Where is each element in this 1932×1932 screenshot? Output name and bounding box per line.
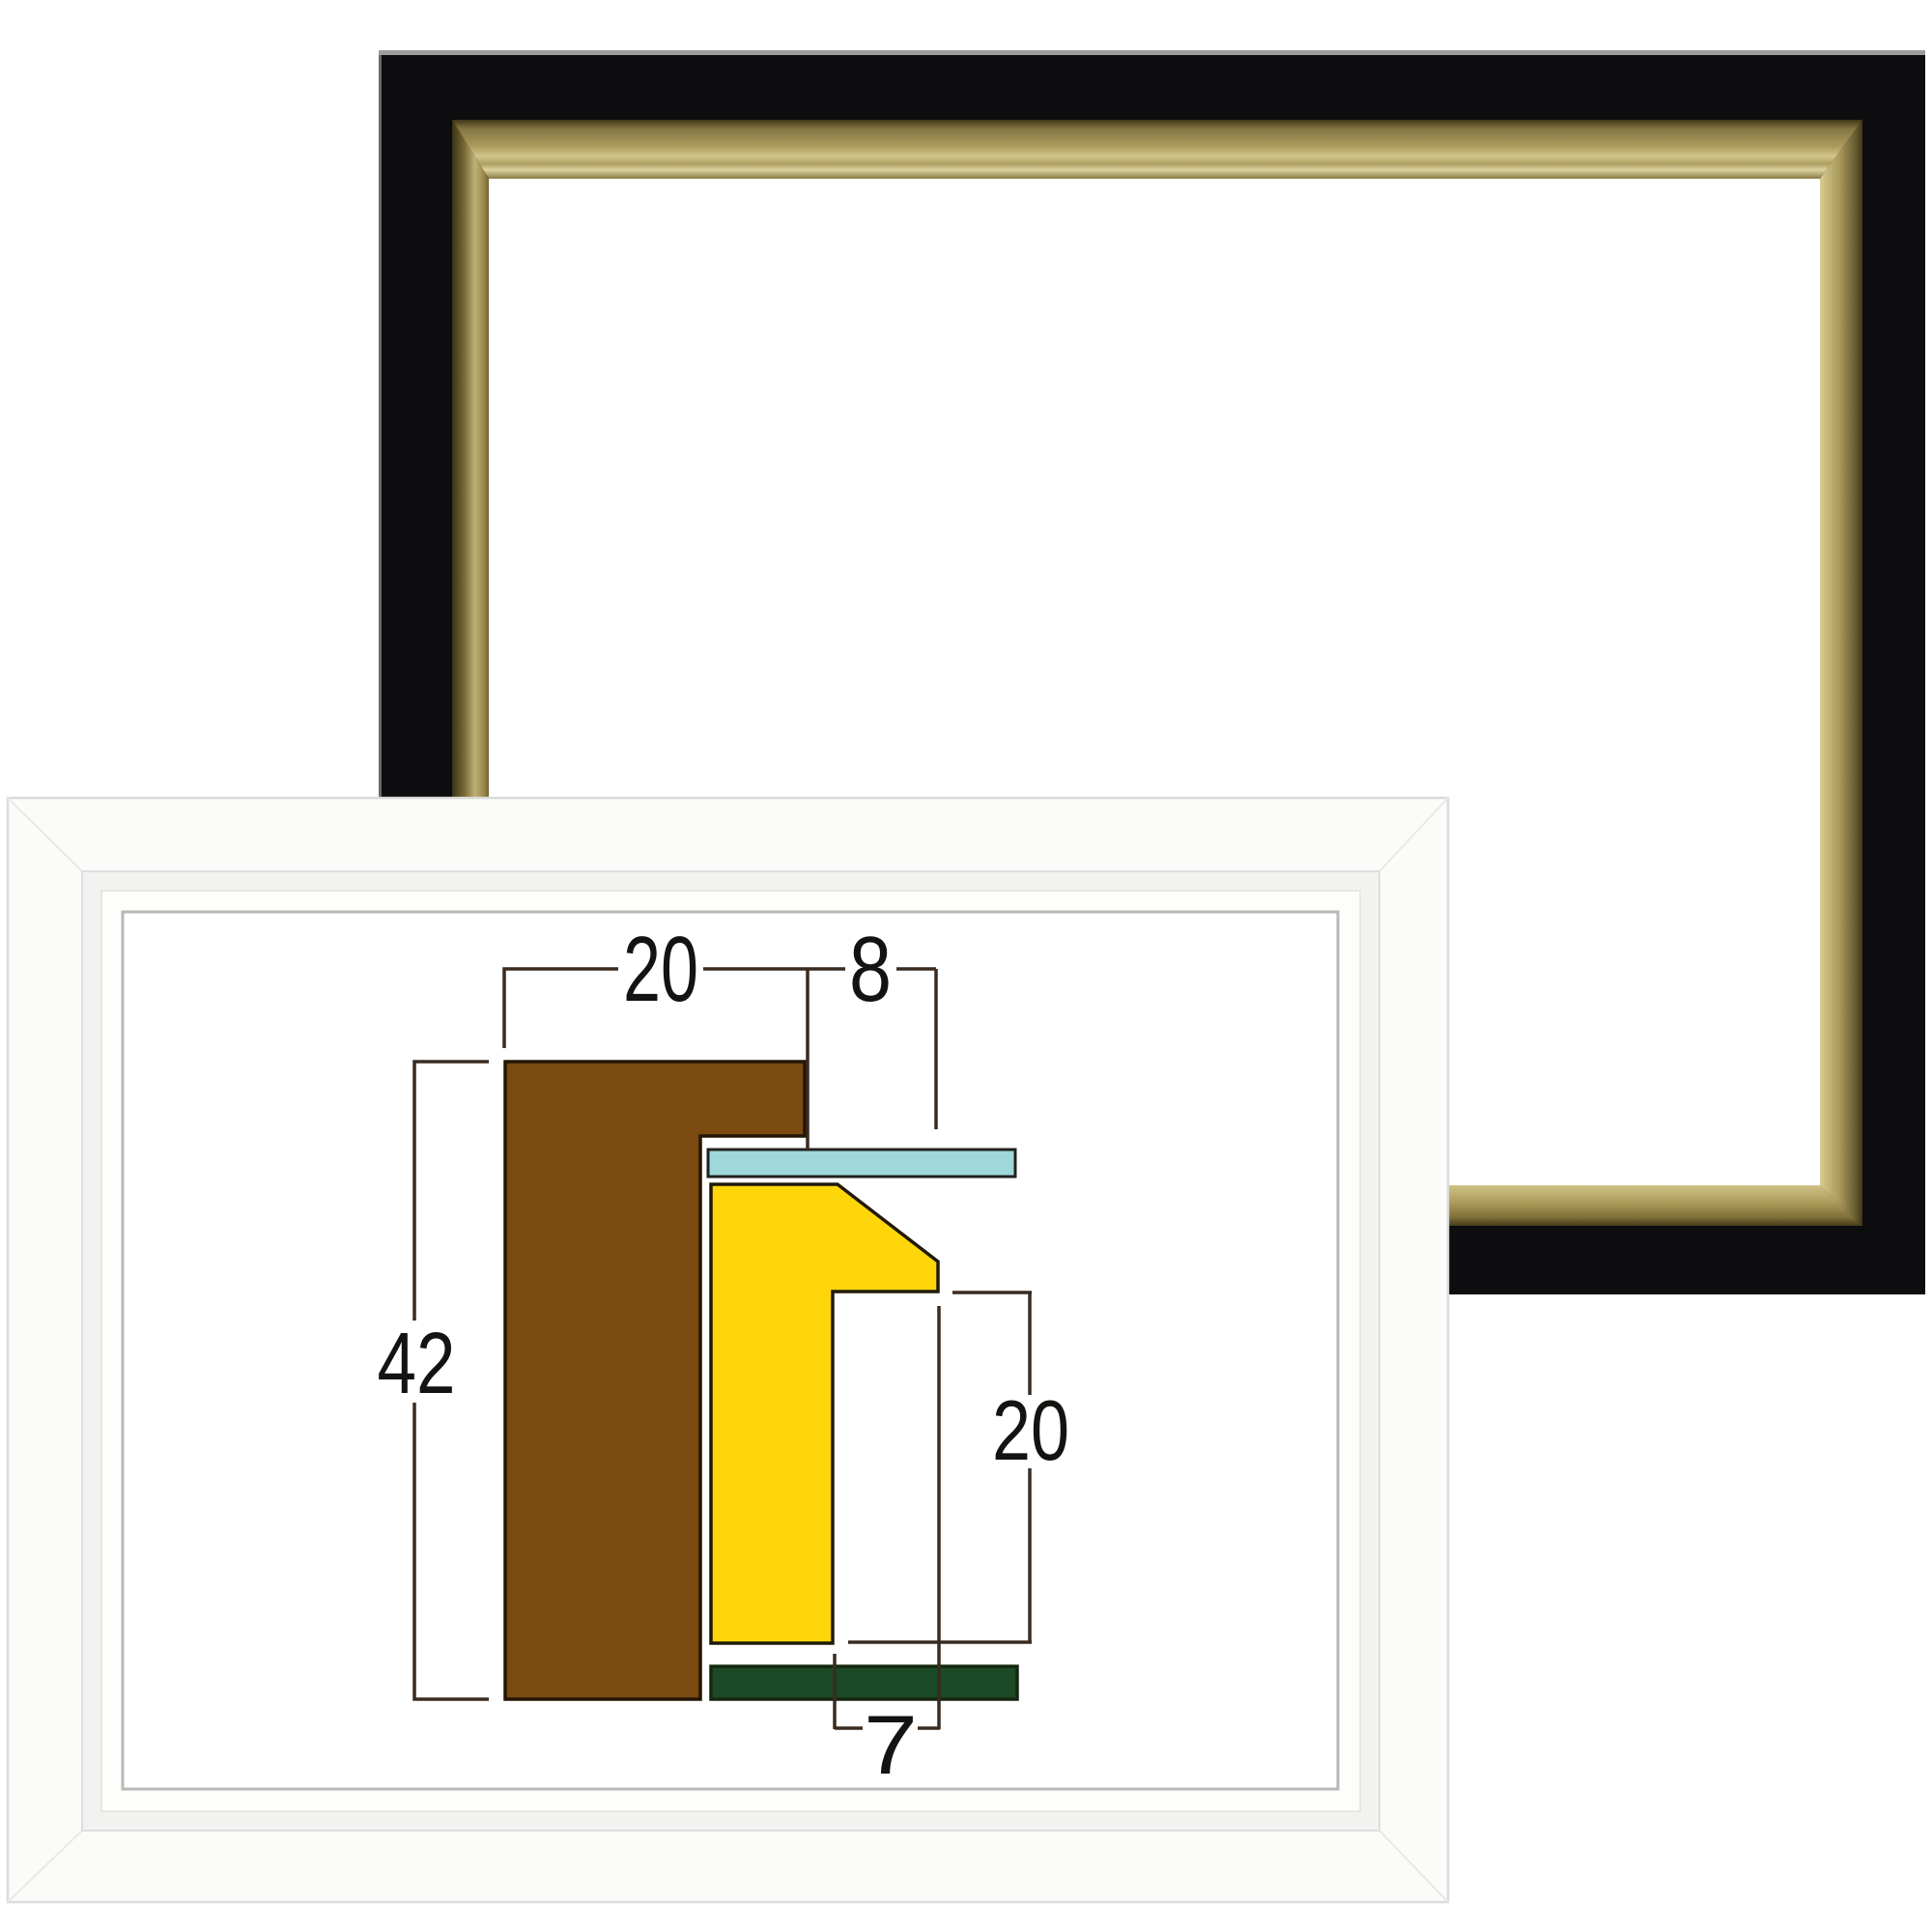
svg-text:20: 20: [623, 918, 698, 1021]
svg-text:7: 7: [864, 1699, 918, 1792]
svg-text:8: 8: [849, 918, 892, 1021]
svg-text:20: 20: [992, 1382, 1069, 1478]
svg-text:42: 42: [378, 1316, 456, 1412]
